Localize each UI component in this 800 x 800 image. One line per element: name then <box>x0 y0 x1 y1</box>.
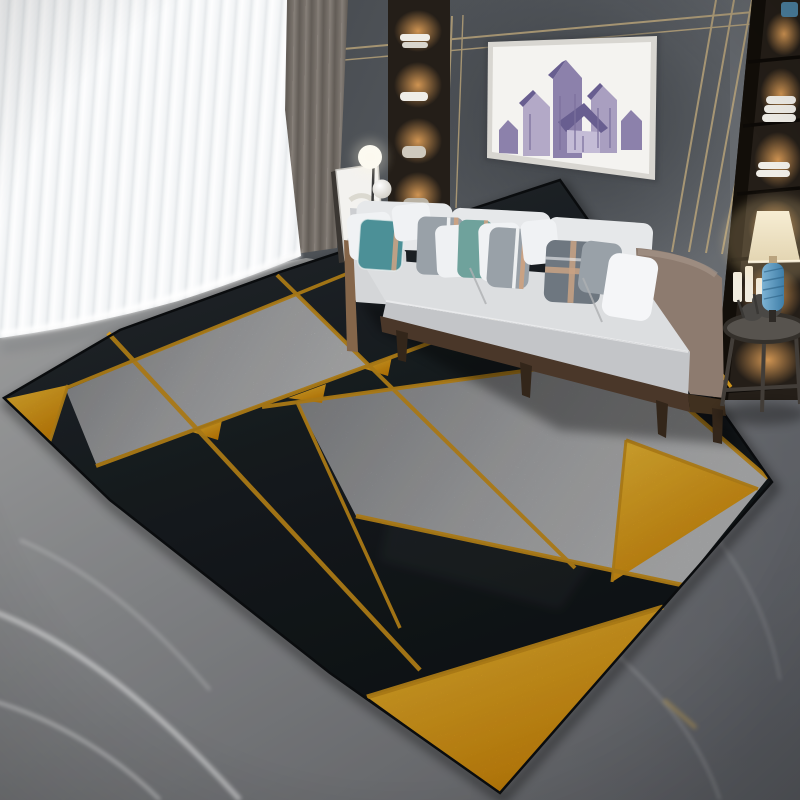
photo-vignette <box>0 0 800 800</box>
scene-canvas <box>0 0 800 800</box>
living-room-photo <box>0 0 800 800</box>
